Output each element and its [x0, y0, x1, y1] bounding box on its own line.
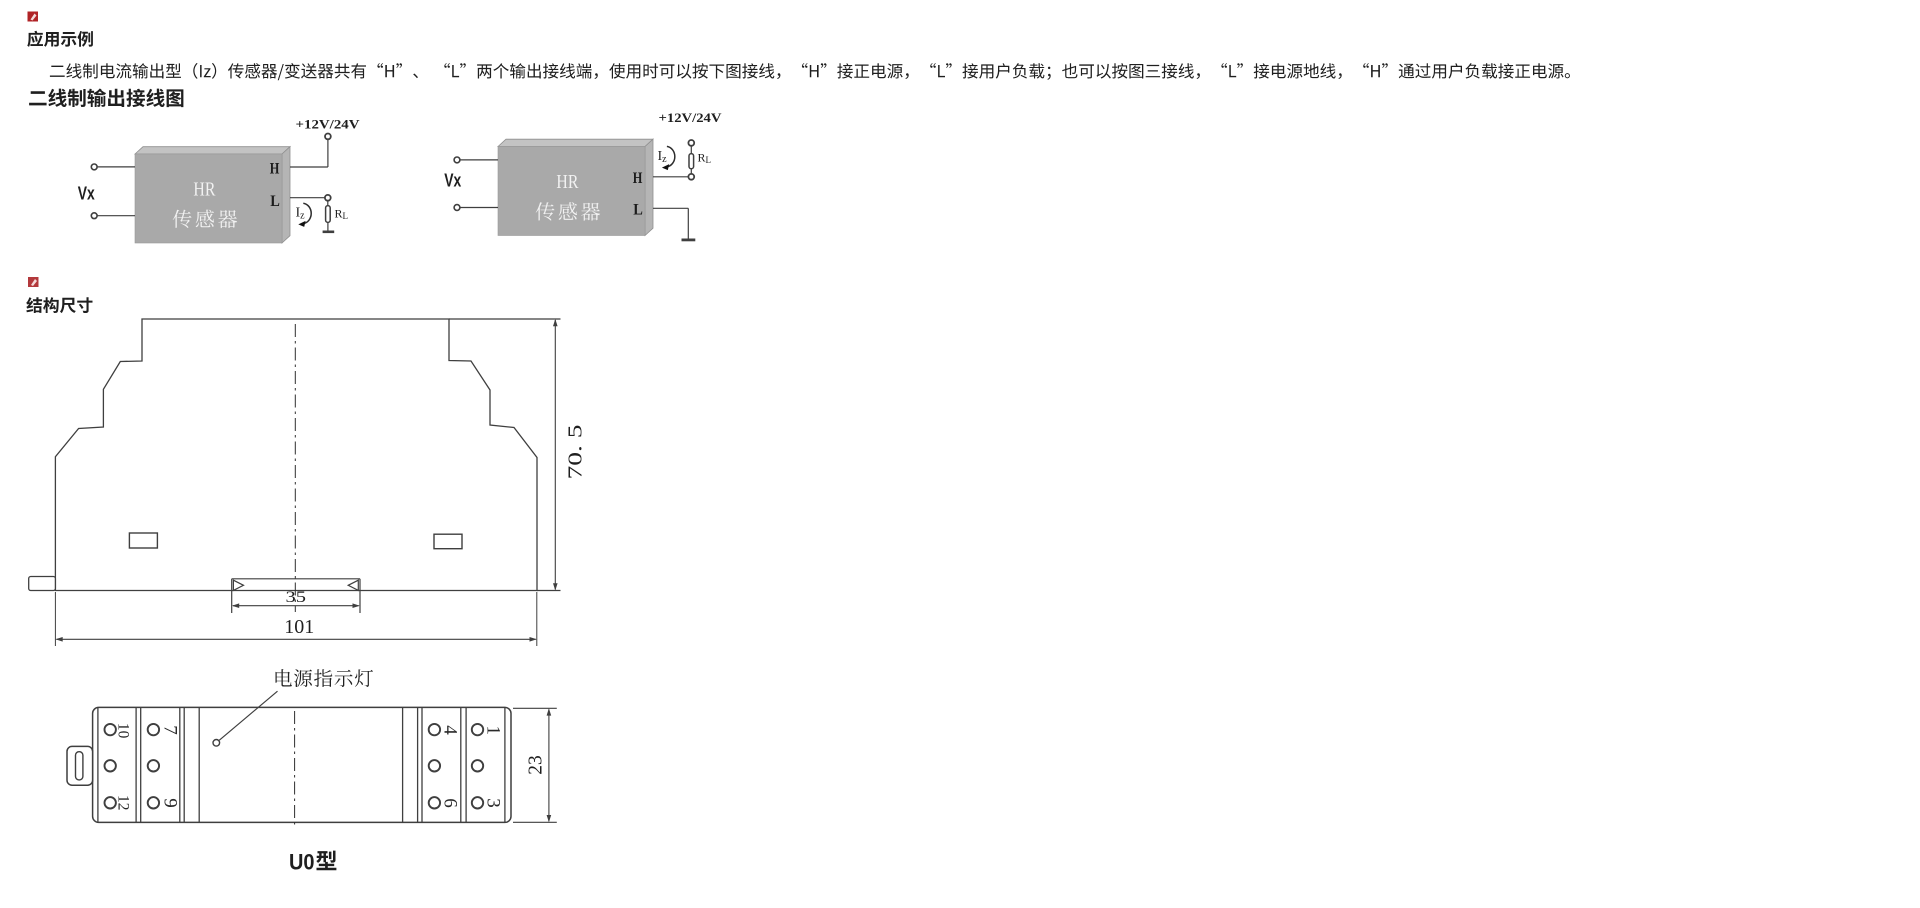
svg-text:3: 3	[483, 798, 504, 808]
svg-text:Iz: Iz	[658, 149, 668, 165]
svg-text:7: 7	[160, 725, 181, 735]
svg-text:4: 4	[440, 725, 461, 735]
svg-text:10: 10	[115, 723, 132, 739]
svg-text:Iz: Iz	[296, 206, 306, 222]
svg-text:L: L	[270, 193, 280, 210]
svg-text:+12V/24V: +12V/24V	[296, 117, 360, 131]
svg-text:Vx: Vx	[444, 170, 461, 190]
svg-text:Vx: Vx	[78, 183, 95, 203]
svg-text:35: 35	[286, 589, 307, 606]
svg-text:HR: HR	[193, 179, 216, 201]
svg-text:70. 5: 70. 5	[565, 425, 587, 480]
svg-text:9: 9	[160, 798, 181, 808]
svg-text:HR: HR	[556, 171, 579, 193]
svg-text:6: 6	[440, 798, 461, 808]
svg-text:RL: RL	[698, 151, 712, 166]
svg-text:RL: RL	[335, 207, 349, 222]
svg-text:23: 23	[526, 755, 547, 775]
svg-text:101: 101	[284, 617, 314, 638]
svg-text:H: H	[633, 170, 643, 187]
svg-text:1: 1	[483, 726, 504, 736]
svg-text:+12V/24V: +12V/24V	[659, 111, 722, 125]
svg-text:L: L	[633, 202, 643, 219]
svg-text:12: 12	[115, 795, 132, 810]
svg-text:U0: U0	[289, 850, 315, 875]
svg-text:H: H	[270, 160, 280, 177]
